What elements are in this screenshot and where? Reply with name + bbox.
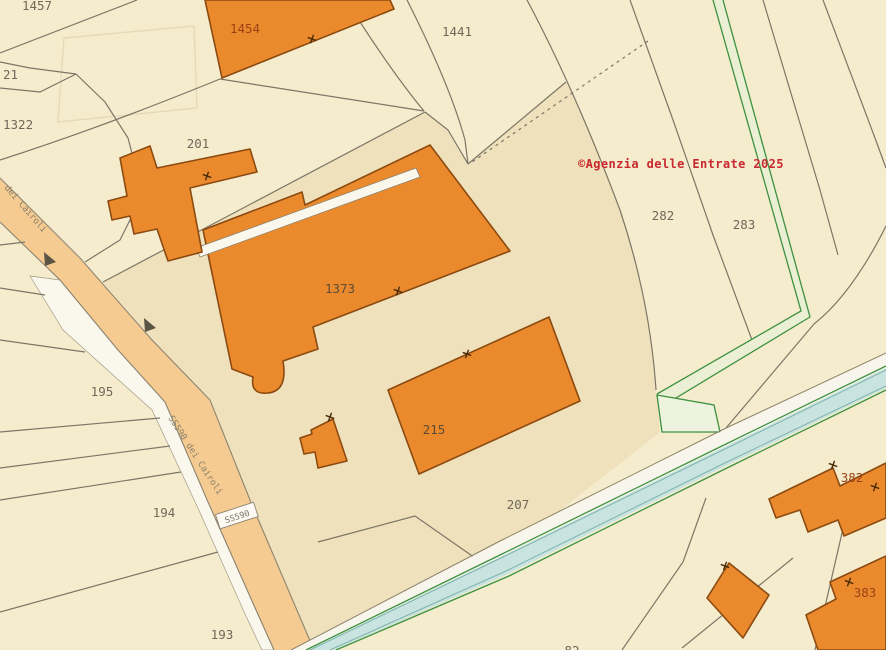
parcel-label-1457: 1457 <box>22 0 52 13</box>
parcel-label-283: 283 <box>733 217 756 232</box>
building-label-383: 383 <box>854 585 877 600</box>
parcel-label-21: 21 <box>3 67 18 82</box>
building-label-1373: 1373 <box>325 281 355 296</box>
cadastral-map[interactable]: 1457211322201144128228319519419320782145… <box>0 0 886 650</box>
parcel-label-194: 194 <box>153 505 176 520</box>
copyright-text: ©Agenzia delle Entrate 2025 <box>578 157 784 171</box>
building-label-215: 215 <box>423 422 446 437</box>
parcel-label-207: 207 <box>507 497 530 512</box>
parcel-label-201: 201 <box>187 136 210 151</box>
parcel-label-1322: 1322 <box>3 117 33 132</box>
parcel-label-282: 282 <box>652 208 675 223</box>
parcel-label-82: 82 <box>564 643 579 650</box>
parcel-label-195: 195 <box>91 384 114 399</box>
parcel-label-1441: 1441 <box>442 24 472 39</box>
building-label-1454: 1454 <box>230 21 260 36</box>
map-canvas[interactable]: 1457211322201144128228319519419320782145… <box>0 0 886 650</box>
parcel-label-193: 193 <box>211 627 234 642</box>
building-label-382: 382 <box>841 470 864 485</box>
